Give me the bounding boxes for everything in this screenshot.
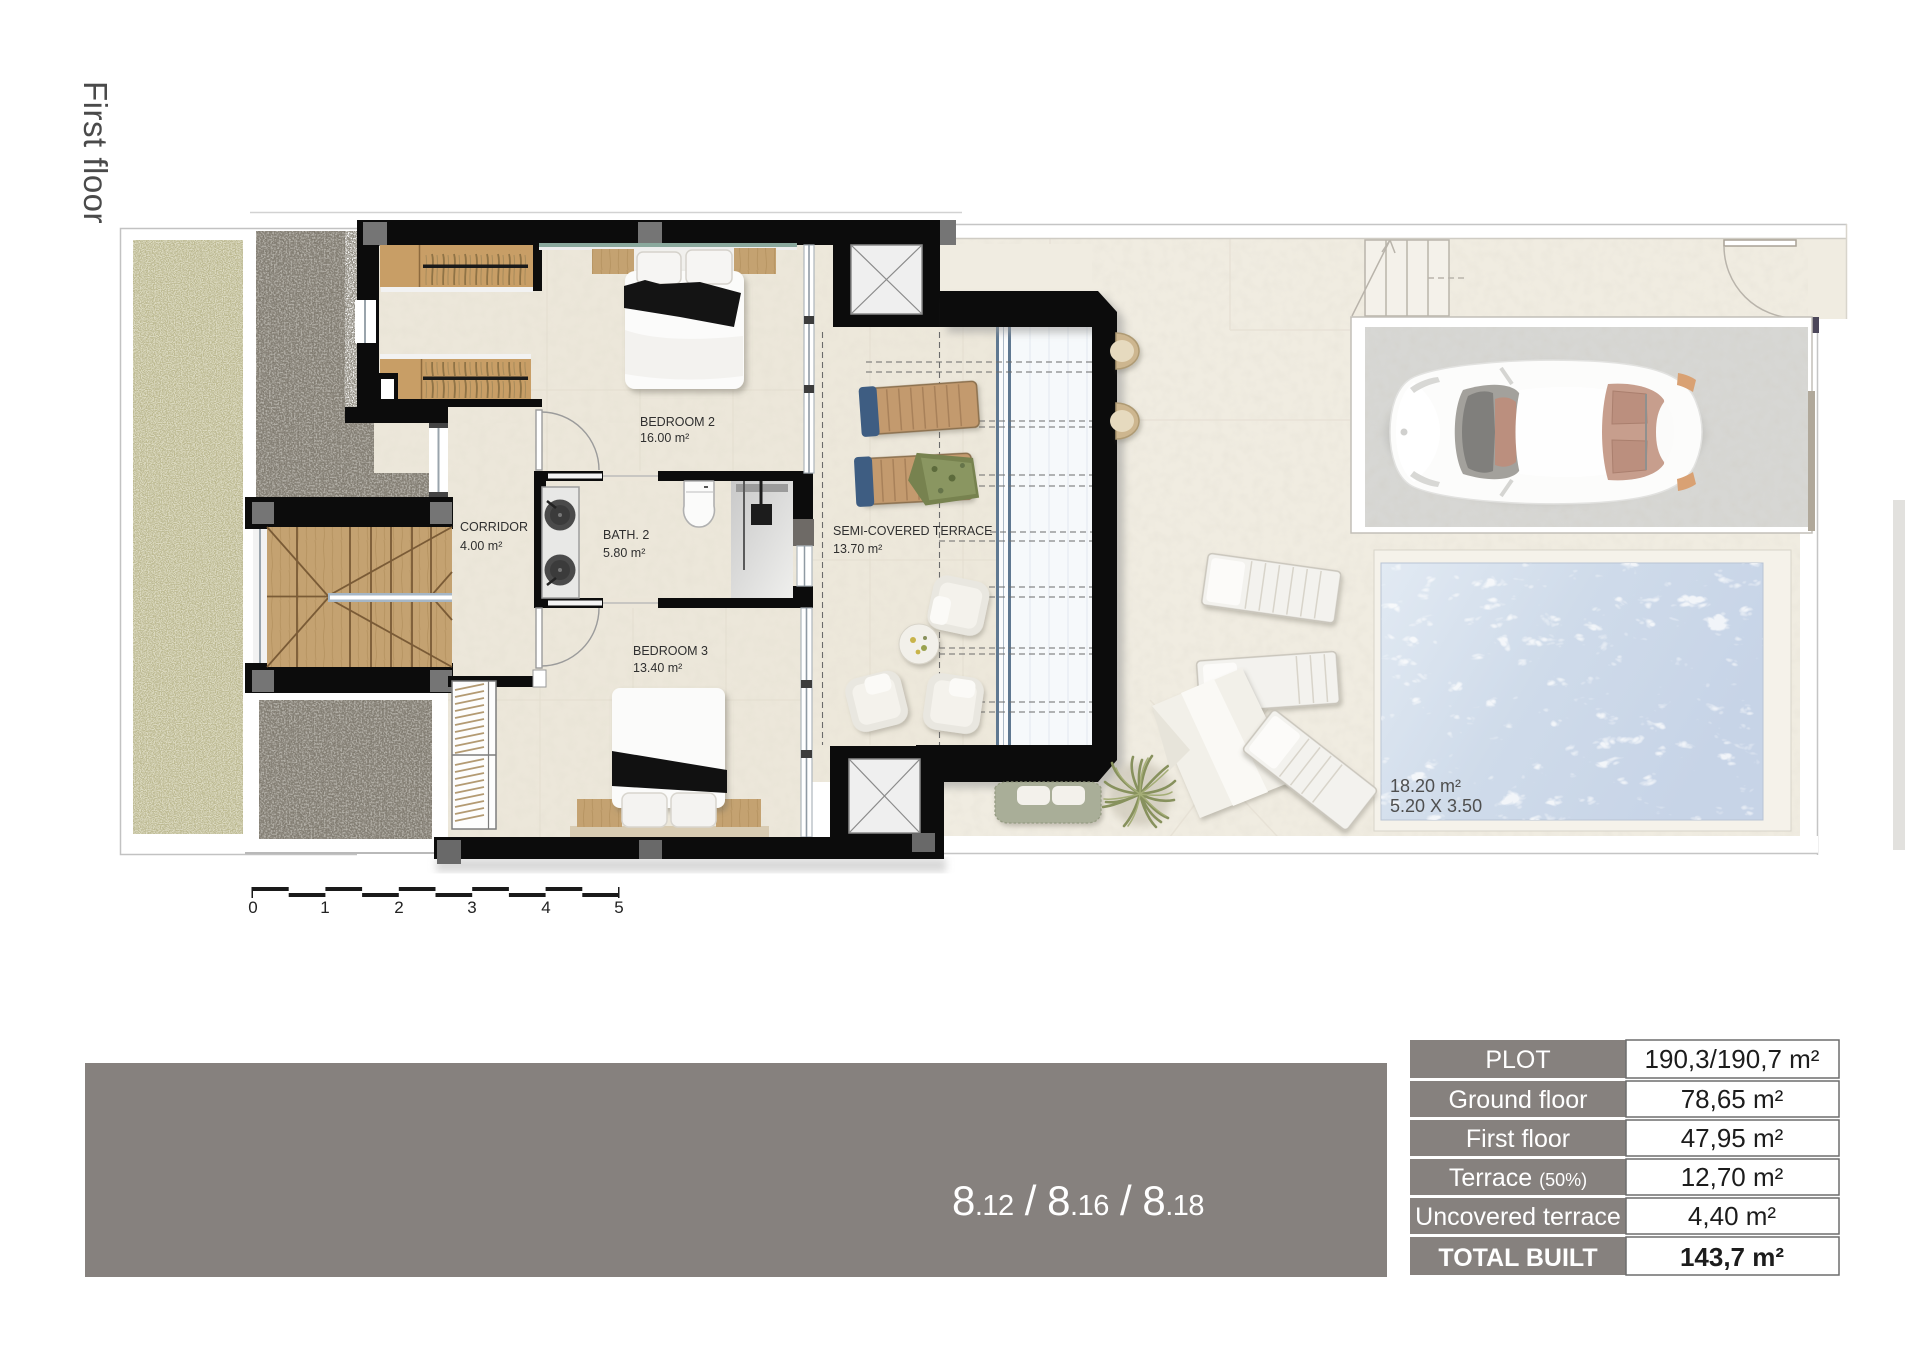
svg-text:Ground floor: Ground floor xyxy=(1449,1086,1588,1114)
svg-text:0: 0 xyxy=(248,898,257,917)
svg-text:TOTAL BUILT: TOTAL BUILT xyxy=(1438,1244,1597,1272)
svg-text:SEMI-COVERED TERRACE: SEMI-COVERED TERRACE xyxy=(833,524,993,538)
svg-text:13.40 m²: 13.40 m² xyxy=(633,661,682,675)
svg-text:BATH. 2: BATH. 2 xyxy=(603,528,649,542)
svg-text:12,70 m²: 12,70 m² xyxy=(1681,1162,1784,1192)
svg-text:190,3/190,7 m²: 190,3/190,7 m² xyxy=(1645,1044,1820,1074)
svg-text:1: 1 xyxy=(320,898,329,917)
svg-text:4: 4 xyxy=(541,898,550,917)
svg-text:2: 2 xyxy=(394,898,403,917)
svg-text:Uncovered terrace: Uncovered terrace xyxy=(1415,1203,1621,1231)
svg-text:BEDROOM 3: BEDROOM 3 xyxy=(633,644,708,658)
svg-text:5.20 X 3.50: 5.20 X 3.50 xyxy=(1390,796,1482,816)
svg-text:18.20 m²: 18.20 m² xyxy=(1390,776,1461,796)
svg-text:First floor: First floor xyxy=(1466,1125,1570,1153)
svg-text:13.70 m²: 13.70 m² xyxy=(833,542,882,556)
svg-text:PLOT: PLOT xyxy=(1485,1046,1550,1074)
svg-text:143,7 m²: 143,7 m² xyxy=(1680,1242,1784,1272)
svg-text:47,95 m²: 47,95 m² xyxy=(1681,1123,1784,1153)
svg-text:5: 5 xyxy=(614,898,623,917)
svg-text:78,65 m²: 78,65 m² xyxy=(1681,1084,1784,1114)
svg-text:3: 3 xyxy=(467,898,476,917)
svg-text:4.00 m²: 4.00 m² xyxy=(460,539,502,553)
svg-text:5.80 m²: 5.80 m² xyxy=(603,546,645,560)
svg-text:BEDROOM 2: BEDROOM 2 xyxy=(640,415,715,429)
svg-text:4,40 m²: 4,40 m² xyxy=(1688,1201,1776,1231)
svg-text:16.00 m²: 16.00 m² xyxy=(640,431,689,445)
svg-text:CORRIDOR: CORRIDOR xyxy=(460,520,528,534)
svg-text:First floor: First floor xyxy=(77,81,114,224)
